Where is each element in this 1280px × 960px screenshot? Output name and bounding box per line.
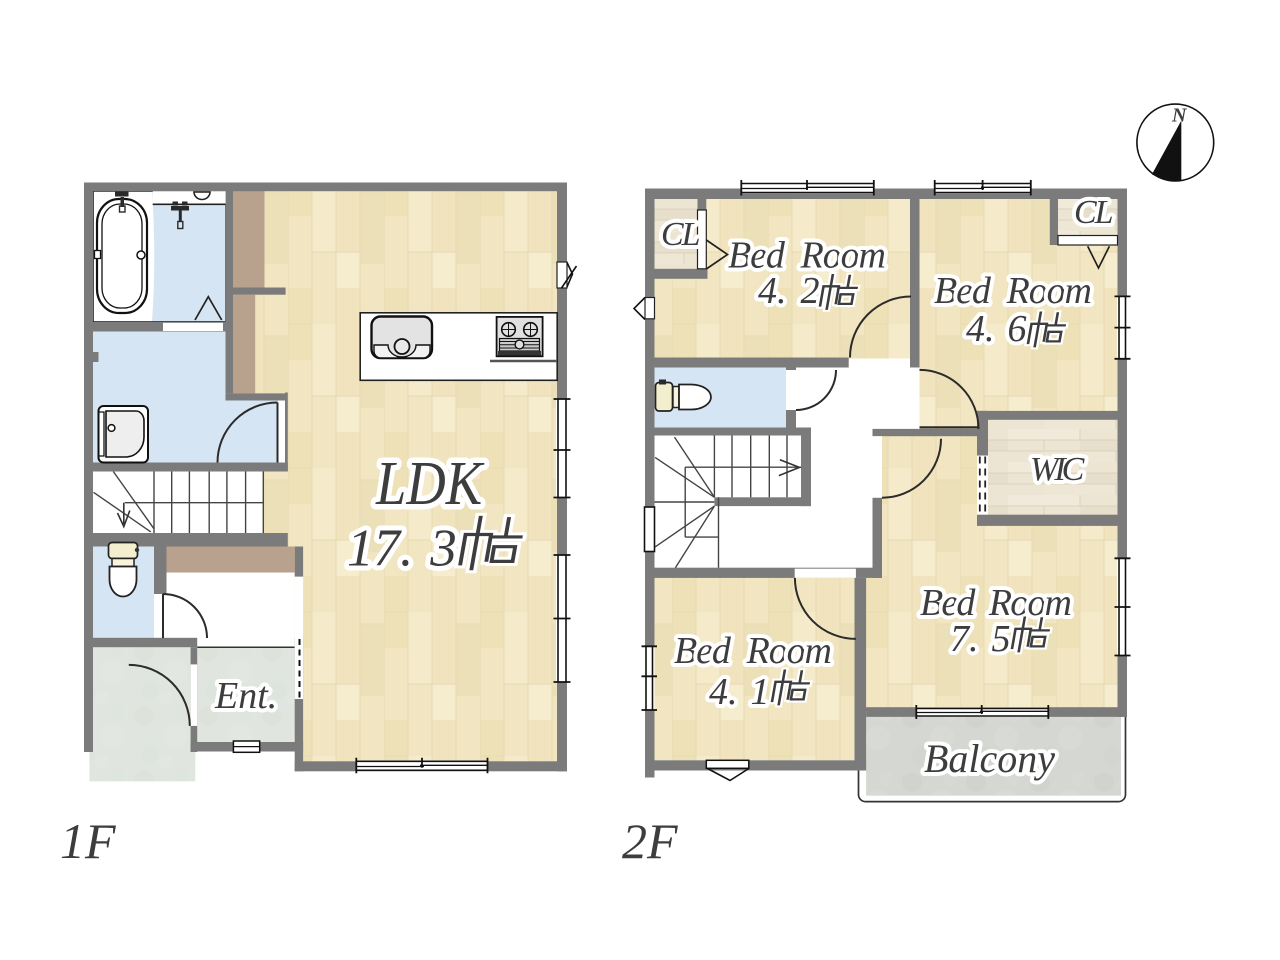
svg-text:N: N [1171,105,1188,127]
svg-text:Ent.: Ent. [214,675,277,717]
svg-text:WIC: WIC [1030,451,1085,488]
svg-text:17.3: 17.3 [347,520,457,578]
svg-text:Bed Room: Bed Room [674,630,832,672]
svg-text:CL: CL [1074,194,1113,231]
svg-text:1F: 1F [60,813,116,869]
svg-text:Balcony: Balcony [924,736,1055,781]
svg-text:Bed Room: Bed Room [934,270,1092,312]
svg-text:LDK: LDK [375,449,485,518]
svg-text:2F: 2F [622,813,678,869]
svg-text:CL: CL [661,216,700,253]
